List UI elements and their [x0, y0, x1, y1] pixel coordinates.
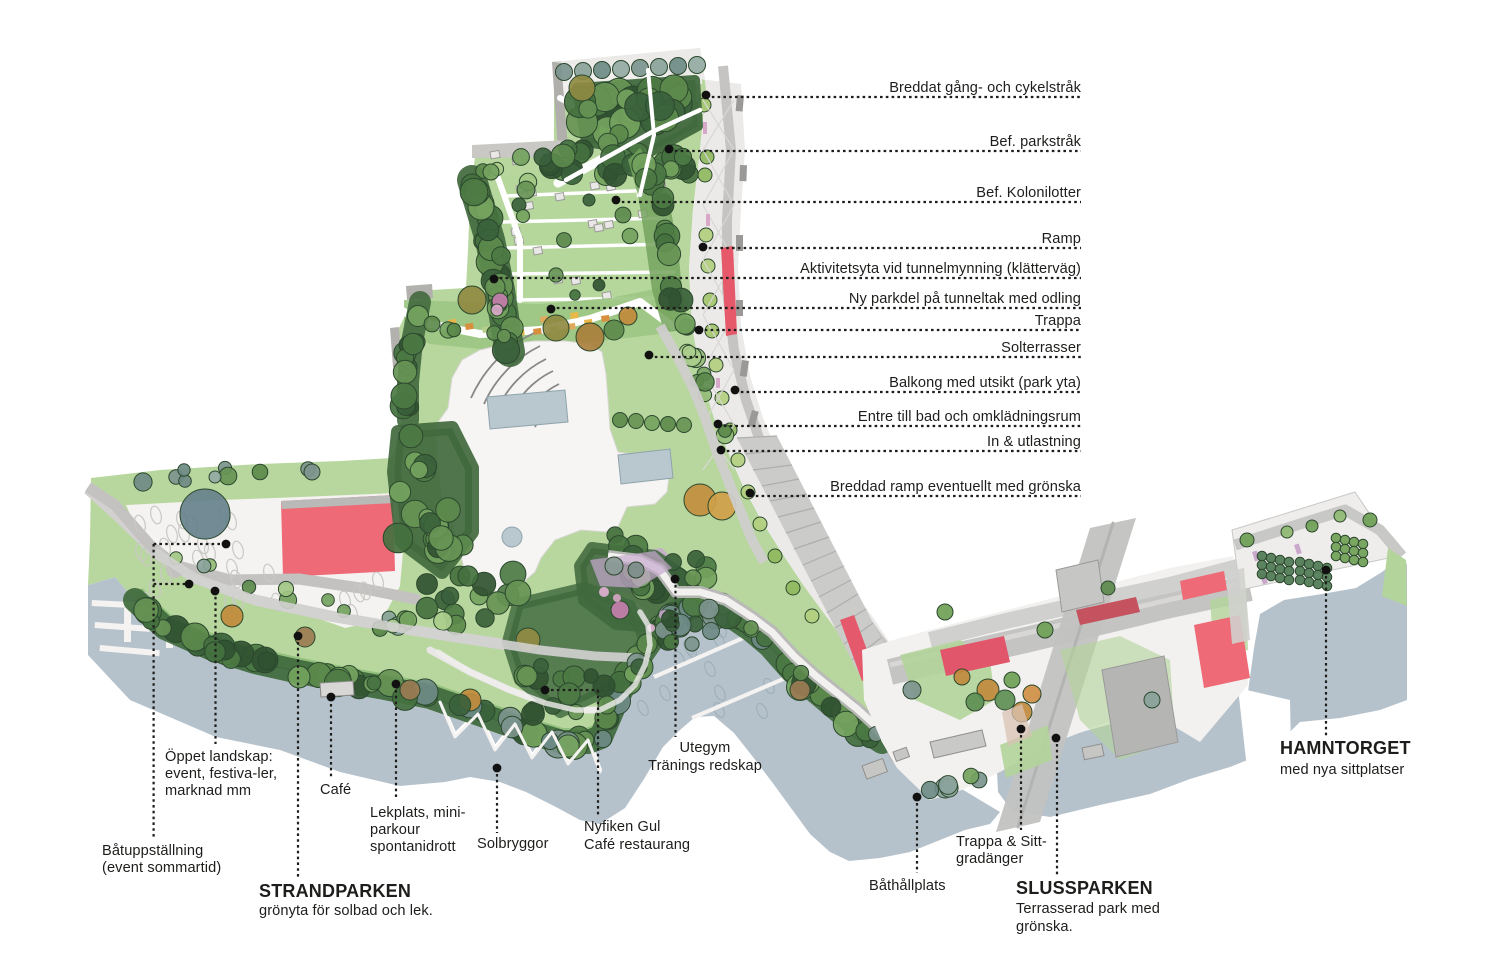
- svg-text:In & utlastning: In & utlastning: [987, 434, 1081, 450]
- svg-text:marknad mm: marknad mm: [165, 783, 251, 799]
- svg-text:med nya sittplatser: med nya sittplatser: [1280, 762, 1404, 778]
- svg-text:SLUSSPARKEN: SLUSSPARKEN: [1016, 878, 1153, 898]
- svg-text:STRANDPARKEN: STRANDPARKEN: [259, 881, 411, 901]
- svg-text:Båtuppställning: Båtuppställning: [102, 843, 203, 859]
- svg-text:Lekplats, mini-: Lekplats, mini-: [370, 805, 466, 821]
- svg-text:Trappa & Sitt-: Trappa & Sitt-: [956, 834, 1047, 850]
- svg-text:grönyta för solbad och lek.: grönyta för solbad och lek.: [259, 903, 433, 919]
- svg-text:Balkong med utsikt (park yta): Balkong med utsikt (park yta): [889, 375, 1081, 391]
- svg-text:Solterrasser: Solterrasser: [1001, 340, 1081, 356]
- svg-text:Nyfiken Gul: Nyfiken Gul: [584, 819, 661, 835]
- svg-text:event, festiva-ler,: event, festiva-ler,: [165, 766, 277, 782]
- svg-text:Bef. parkstråk: Bef. parkstråk: [990, 134, 1082, 150]
- svg-text:Ramp: Ramp: [1042, 231, 1081, 247]
- svg-text:Breddat gång- och cykelstråk: Breddat gång- och cykelstråk: [889, 80, 1081, 96]
- svg-text:spontanidrott: spontanidrott: [370, 839, 456, 855]
- svg-text:(event sommartid): (event sommartid): [102, 860, 221, 876]
- svg-text:HAMNTORGET: HAMNTORGET: [1280, 738, 1411, 758]
- svg-text:Ny parkdel på tunneltak med od: Ny parkdel på tunneltak med odling: [849, 291, 1081, 307]
- svg-text:grönska.: grönska.: [1016, 919, 1073, 935]
- svg-text:gradänger: gradänger: [956, 851, 1023, 867]
- svg-text:Café restaurang: Café restaurang: [584, 837, 690, 853]
- svg-text:Entre till bad och omklädnings: Entre till bad och omklädningsrum: [858, 409, 1081, 425]
- svg-text:Båthållplats: Båthållplats: [869, 878, 946, 894]
- svg-text:Solbryggor: Solbryggor: [477, 836, 549, 852]
- svg-text:Trappa: Trappa: [1035, 313, 1082, 329]
- svg-text:Utegym: Utegym: [680, 740, 731, 756]
- svg-text:Terrasserad park med: Terrasserad park med: [1016, 901, 1160, 917]
- svg-text:Öppet landskap:: Öppet landskap:: [165, 747, 273, 765]
- svg-text:Breddad ramp eventuellt med gr: Breddad ramp eventuellt med grönska: [830, 479, 1082, 495]
- svg-text:Café: Café: [320, 782, 351, 798]
- svg-text:Bef. Kolonilotter: Bef. Kolonilotter: [976, 185, 1081, 201]
- svg-text:parkour: parkour: [370, 822, 420, 838]
- svg-text:Tränings redskap: Tränings redskap: [648, 758, 762, 774]
- svg-text:Aktivitetsyta vid tunnelmynnin: Aktivitetsyta vid tunnelmynning (klätter…: [800, 261, 1081, 277]
